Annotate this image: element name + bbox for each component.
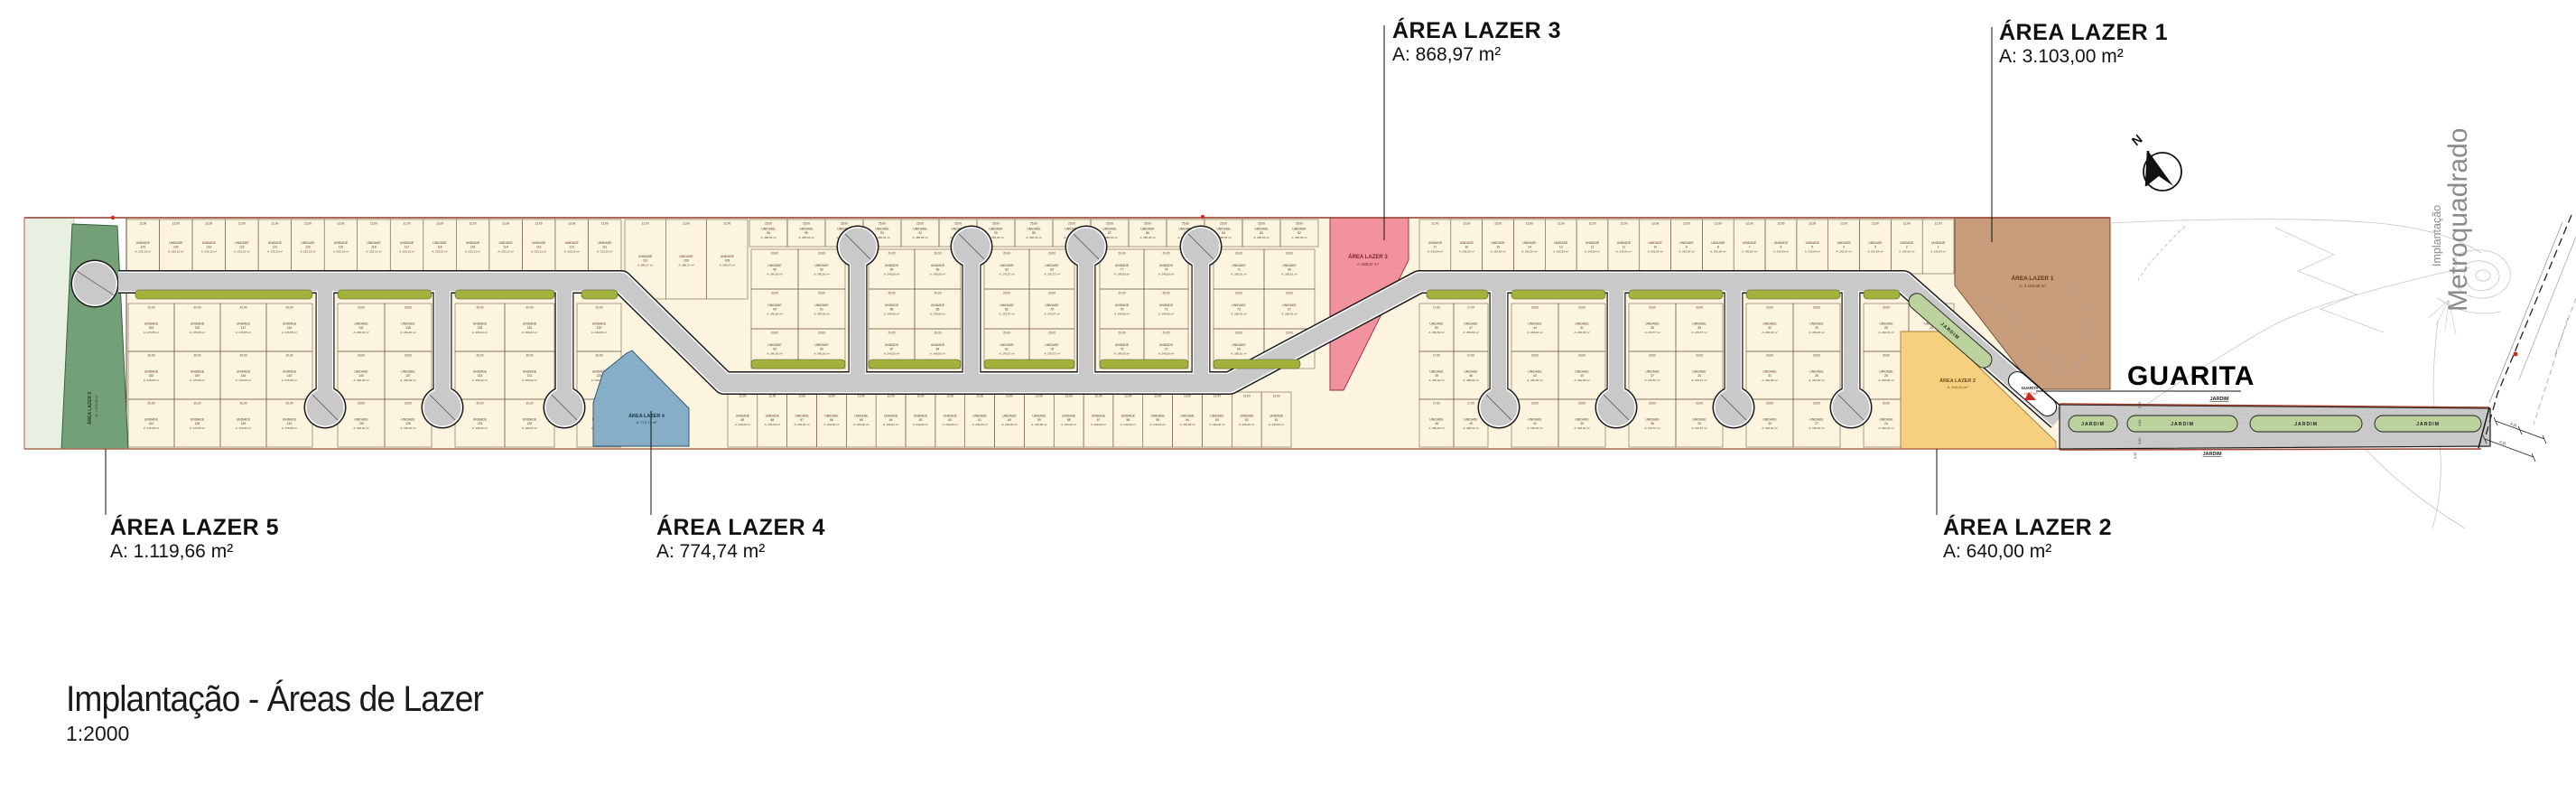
svg-text:12,00: 12,00: [1558, 222, 1565, 226]
svg-text:20,00: 20,00: [888, 332, 896, 335]
svg-text:UNIDADE: UNIDADE: [283, 418, 297, 422]
svg-text:A: 233,13 m²: A: 233,13 m²: [333, 250, 349, 254]
svg-text:A: 266,62 m²: A: 266,62 m²: [1463, 331, 1478, 334]
svg-text:12,00: 12,00: [1526, 222, 1533, 226]
svg-text:12,00: 12,00: [172, 222, 180, 226]
svg-text:117: 117: [405, 246, 410, 249]
svg-text:68: 68: [770, 418, 774, 422]
callout-title: ÁREA LAZER 5: [110, 515, 279, 541]
svg-text:UNIDADE: UNIDADE: [334, 241, 349, 245]
svg-text:20,00: 20,00: [935, 292, 942, 295]
svg-text:UNIDADE: UNIDADE: [1774, 241, 1789, 245]
svg-text:72: 72: [1165, 347, 1168, 350]
svg-text:134: 134: [478, 374, 483, 378]
svg-text:56: 56: [1126, 418, 1130, 422]
svg-text:UNIDADE: UNIDADE: [767, 264, 782, 267]
svg-text:111: 111: [602, 246, 607, 249]
svg-text:UNIDADE: UNIDADE: [1282, 304, 1297, 307]
svg-text:A: 266,62 m²: A: 266,62 m²: [1231, 312, 1246, 315]
svg-text:20,00: 20,00: [771, 252, 778, 256]
svg-text:UNIDADE: UNIDADE: [1900, 241, 1914, 245]
svg-text:65: 65: [860, 418, 863, 422]
svg-text:A: 276,55 m²: A: 276,55 m²: [144, 331, 159, 334]
svg-text:UNIDADE: UNIDADE: [565, 241, 580, 245]
svg-text:27: 27: [1815, 422, 1818, 425]
svg-text:UNIDADE: UNIDADE: [824, 415, 839, 418]
svg-text:81: 81: [1005, 347, 1009, 350]
svg-text:UNIDADE: UNIDADE: [401, 418, 415, 422]
svg-text:96: 96: [767, 231, 770, 235]
svg-text:12,00: 12,00: [1463, 222, 1470, 226]
svg-text:A: 240,00 m²: A: 240,00 m²: [1878, 426, 1893, 430]
svg-text:12,00: 12,00: [1184, 395, 1191, 398]
svg-text:UNIDADE: UNIDADE: [499, 241, 514, 245]
svg-text:20,00: 20,00: [1696, 354, 1703, 358]
landscape-strip: [455, 290, 554, 299]
svg-text:0,45: 0,45: [2134, 453, 2137, 459]
svg-text:A: 233,13 m²: A: 233,13 m²: [597, 250, 612, 254]
svg-text:20,00: 20,00: [1235, 332, 1242, 335]
svg-text:88: 88: [890, 307, 894, 311]
svg-text:UNIDADE: UNIDADE: [1617, 241, 1632, 245]
svg-text:20,00: 20,00: [240, 306, 247, 310]
svg-text:A: 276,55 m²: A: 276,55 m²: [190, 378, 205, 382]
svg-text:UNIDADE: UNIDADE: [1837, 241, 1851, 245]
svg-text:118: 118: [371, 246, 377, 249]
svg-text:93: 93: [880, 231, 884, 235]
svg-text:34: 34: [1697, 374, 1701, 378]
svg-text:A: 233,13 m²: A: 233,13 m²: [201, 250, 217, 254]
guarita-small-area: 16,27 m²: [2024, 392, 2039, 396]
svg-text:UNIDADE: UNIDADE: [235, 241, 249, 245]
svg-text:JARDIM: JARDIM: [2202, 452, 2222, 457]
svg-text:132: 132: [527, 326, 533, 330]
svg-text:20,00: 20,00: [1048, 252, 1056, 256]
svg-text:UNIDADE: UNIDADE: [1102, 228, 1117, 231]
svg-text:A: 233,13 m²: A: 233,13 m²: [267, 250, 283, 254]
svg-text:20,00: 20,00: [1766, 402, 1773, 406]
svg-text:17,00: 17,00: [1433, 306, 1440, 310]
svg-text:20,00: 20,00: [148, 402, 155, 406]
callout-area: A: 774,74 m²: [656, 541, 825, 563]
svg-text:UNIDADE: UNIDADE: [931, 264, 945, 267]
callout-area: A: 1.119,66 m²: [110, 541, 279, 563]
svg-text:UNIDADE: UNIDADE: [1232, 264, 1246, 267]
svg-text:UNIDADE: UNIDADE: [1092, 415, 1106, 418]
svg-text:141: 141: [358, 326, 364, 330]
svg-text:35: 35: [1697, 326, 1701, 330]
svg-text:UNIDADE: UNIDADE: [367, 241, 381, 245]
svg-text:UNIDADE: UNIDADE: [1645, 418, 1660, 422]
svg-text:25,00: 25,00: [1106, 222, 1113, 226]
landscape-strip: [1214, 360, 1300, 369]
svg-text:UNIDADE: UNIDADE: [1586, 241, 1600, 245]
svg-text:A: 242,54 m²: A: 242,54 m²: [1585, 250, 1600, 254]
svg-text:A: 240,00 m²: A: 240,00 m²: [883, 423, 898, 426]
svg-text:A: 240,00 m²: A: 240,00 m²: [353, 426, 368, 430]
svg-text:A: 276,57 m²: A: 276,57 m²: [1644, 378, 1660, 382]
svg-text:UNIDADE: UNIDADE: [799, 228, 814, 231]
svg-text:UNIDADE: UNIDADE: [1879, 418, 1893, 422]
svg-text:23: 23: [1930, 326, 1933, 330]
svg-text:12,00: 12,00: [1589, 222, 1596, 226]
svg-text:133: 133: [478, 422, 483, 425]
svg-text:A: 240,00 m²: A: 240,00 m²: [1527, 378, 1542, 382]
svg-text:A: 276,57 m²: A: 276,57 m²: [999, 351, 1014, 355]
siteplan-sheet: 12,00UNIDADE125A: 233,13 m²12,00UNIDADE1…: [0, 0, 2576, 794]
svg-text:12,00: 12,00: [1036, 395, 1043, 398]
jardim-median: JARDIM: [2375, 416, 2481, 432]
svg-text:12,00: 12,00: [568, 222, 575, 226]
svg-text:1: 1: [1938, 246, 1939, 249]
svg-text:20,00: 20,00: [405, 306, 412, 310]
watermark: Metroquadrado Implantação: [2431, 128, 2473, 312]
svg-text:54: 54: [1186, 418, 1189, 422]
svg-text:UNIDADE: UNIDADE: [885, 304, 899, 307]
svg-text:UNIDADE: UNIDADE: [1491, 241, 1505, 245]
svg-text:55: 55: [1156, 418, 1159, 422]
svg-text:90: 90: [994, 231, 998, 235]
svg-text:A: 240,00 m²: A: 240,00 m²: [1809, 331, 1824, 334]
svg-text:142: 142: [287, 422, 293, 425]
svg-text:UNIDADE: UNIDADE: [401, 322, 415, 326]
svg-text:9: 9: [1686, 246, 1688, 249]
svg-text:JARDIM: JARDIM: [2416, 422, 2440, 427]
svg-text:A: 265,45 m²: A: 265,45 m²: [798, 236, 814, 239]
svg-text:12,00: 12,00: [723, 222, 730, 226]
landscape-strip: [751, 360, 845, 369]
svg-text:12,00: 12,00: [1620, 222, 1627, 226]
svg-text:A: 276,55 m²: A: 276,55 m²: [282, 426, 297, 430]
svg-text:UNIDADE: UNIDADE: [532, 241, 546, 245]
svg-text:A: 1.119,66 m²: A: 1.119,66 m²: [95, 394, 98, 416]
svg-text:20,00: 20,00: [1883, 402, 1890, 406]
svg-text:UNIDADE: UNIDADE: [1002, 415, 1017, 418]
svg-text:20,00: 20,00: [286, 354, 293, 358]
svg-text:144: 144: [287, 326, 293, 330]
svg-text:UNIDADE: UNIDADE: [1032, 415, 1046, 418]
svg-text:A: 242,54 m²: A: 242,54 m²: [1930, 250, 1946, 254]
svg-text:51: 51: [1275, 418, 1279, 422]
svg-text:20,00: 20,00: [1163, 332, 1170, 335]
svg-text:29: 29: [1815, 326, 1818, 330]
svg-text:A: 266,62 m²: A: 266,62 m²: [522, 331, 537, 334]
svg-text:A: 240,00 m²: A: 240,00 m²: [1158, 272, 1174, 276]
plan-canvas: 12,00UNIDADE125A: 233,13 m²12,00UNIDADE1…: [0, 0, 2576, 794]
svg-text:20,00: 20,00: [358, 402, 365, 406]
svg-text:A: 276,57 m²: A: 276,57 m²: [1644, 426, 1660, 430]
svg-text:A: 276,55 m²: A: 276,55 m²: [282, 331, 297, 334]
svg-text:137: 137: [405, 374, 411, 378]
svg-text:87: 87: [890, 347, 894, 350]
svg-text:36: 36: [1651, 422, 1654, 425]
svg-text:A: 276,57 m²: A: 276,57 m²: [1691, 378, 1706, 382]
svg-text:A: 233,13 m²: A: 233,13 m²: [465, 250, 480, 254]
svg-text:131: 131: [527, 374, 533, 378]
svg-text:UNIDADE: UNIDADE: [1879, 370, 1893, 374]
svg-text:114: 114: [503, 246, 508, 249]
svg-text:UNIDADE: UNIDADE: [1528, 418, 1542, 422]
svg-text:15: 15: [1496, 246, 1500, 249]
svg-text:UNIDADE: UNIDADE: [885, 343, 899, 347]
svg-text:44: 44: [1533, 326, 1537, 330]
svg-text:A: 240,00 m²: A: 240,00 m²: [591, 331, 607, 334]
svg-text:A: 242,54 m²: A: 242,54 m²: [1616, 250, 1632, 254]
svg-text:20,00: 20,00: [358, 354, 365, 358]
svg-text:120: 120: [305, 246, 311, 249]
svg-text:A: 276,57 m²: A: 276,57 m²: [999, 272, 1014, 276]
svg-text:UNIDADE: UNIDADE: [1429, 418, 1444, 422]
svg-text:A: 266,62 m²: A: 266,62 m²: [1428, 426, 1444, 430]
svg-text:UNIDADE: UNIDADE: [1649, 241, 1663, 245]
svg-text:UNIDADE: UNIDADE: [283, 370, 297, 374]
svg-text:46: 46: [1469, 374, 1473, 378]
svg-text:12,00: 12,00: [888, 395, 895, 398]
svg-text:148: 148: [195, 422, 200, 425]
svg-text:UNIDADE: UNIDADE: [1464, 322, 1478, 326]
north-arrow: [2146, 151, 2173, 186]
svg-text:UNIDADE: UNIDADE: [1806, 241, 1820, 245]
svg-text:52: 52: [1245, 418, 1249, 422]
svg-text:20,00: 20,00: [1163, 252, 1170, 256]
svg-text:A: 240,00 m²: A: 240,00 m²: [767, 312, 782, 315]
svg-text:40: 40: [1580, 374, 1584, 378]
svg-text:A: 240,00 m²: A: 240,00 m²: [767, 351, 782, 355]
svg-text:79: 79: [1050, 307, 1054, 311]
svg-text:A: 276,55 m²: A: 276,55 m²: [190, 426, 205, 430]
svg-text:A: 242,54 m²: A: 242,54 m²: [1521, 250, 1537, 254]
svg-text:115: 115: [470, 246, 476, 249]
svg-text:UNIDADE: UNIDADE: [191, 322, 205, 326]
svg-text:12,00: 12,00: [304, 222, 312, 226]
svg-text:UNIDADE: UNIDADE: [1692, 370, 1706, 374]
svg-text:A: 240,00 m²: A: 240,00 m²: [1762, 426, 1777, 430]
svg-text:UNIDADE: UNIDADE: [473, 418, 488, 422]
svg-text:UNIDADE: UNIDADE: [1045, 304, 1059, 307]
svg-text:UNIDADE: UNIDADE: [1159, 343, 1174, 347]
svg-text:69: 69: [741, 418, 745, 422]
svg-text:42: 42: [1533, 422, 1537, 425]
svg-text:UNIDADE: UNIDADE: [1269, 415, 1284, 418]
svg-text:UNIDADE: UNIDADE: [1679, 241, 1694, 245]
svg-text:JARDIM: JARDIM: [2171, 422, 2194, 427]
svg-text:UNIDADE: UNIDADE: [1115, 343, 1130, 347]
svg-text:A: 242,54 m²: A: 242,54 m²: [1427, 250, 1443, 254]
landscape-strip: [338, 290, 432, 299]
svg-text:UNIDADE: UNIDADE: [354, 322, 368, 326]
svg-text:20,00: 20,00: [596, 354, 603, 358]
svg-text:UNIDADE: UNIDADE: [1240, 415, 1254, 418]
svg-text:8: 8: [1717, 246, 1719, 249]
svg-text:UNIDADE: UNIDADE: [1692, 418, 1706, 422]
svg-text:A: 242,54 m²: A: 242,54 m²: [1648, 250, 1663, 254]
svg-text:77: 77: [1121, 267, 1124, 271]
svg-text:25,00: 25,00: [992, 222, 1000, 226]
svg-text:A: 276,55 m²: A: 276,55 m²: [190, 331, 205, 334]
svg-text:A: 242,54 m²: A: 242,54 m²: [1679, 250, 1694, 254]
svg-text:20,00: 20,00: [1048, 292, 1056, 295]
svg-text:A: 266,62 m²: A: 266,62 m²: [522, 378, 537, 382]
svg-text:95: 95: [773, 267, 777, 271]
svg-text:121: 121: [273, 246, 278, 249]
svg-text:A: 240,00 m²: A: 240,00 m²: [1209, 423, 1224, 426]
svg-text:152: 152: [149, 374, 154, 378]
watermark-brand: Metroquadrado: [2443, 128, 2473, 312]
svg-text:20,00: 20,00: [240, 402, 247, 406]
svg-text:20,00: 20,00: [477, 306, 484, 310]
svg-text:20,00: 20,00: [1163, 292, 1170, 295]
svg-text:20,00: 20,00: [358, 306, 365, 310]
svg-text:UNIDADE: UNIDADE: [766, 415, 780, 418]
svg-text:95: 95: [804, 231, 808, 235]
svg-text:59: 59: [1037, 418, 1041, 422]
svg-text:83: 83: [1005, 267, 1009, 271]
svg-text:53: 53: [1215, 418, 1219, 422]
svg-text:12,00: 12,00: [205, 222, 212, 226]
svg-text:12,00: 12,00: [139, 222, 146, 226]
svg-text:20,00: 20,00: [935, 332, 942, 335]
svg-text:UNIDADE: UNIDADE: [354, 418, 368, 422]
svg-text:UNIDADE: UNIDADE: [931, 343, 945, 347]
svg-text:UNIDADE: UNIDADE: [721, 255, 735, 258]
svg-text:12,00: 12,00: [1746, 222, 1753, 226]
svg-text:A: 240,00 m²: A: 240,00 m²: [823, 423, 839, 426]
svg-text:20,00: 20,00: [771, 332, 778, 335]
svg-text:A: 240,00 m²: A: 240,00 m²: [1574, 426, 1589, 430]
svg-text:80: 80: [1050, 267, 1054, 271]
svg-text:25,00: 25,00: [1296, 222, 1303, 226]
svg-text:A: 242,54 m²: A: 242,54 m²: [1837, 250, 1852, 254]
svg-text:UNIDADE: UNIDADE: [1000, 343, 1014, 347]
svg-text:5: 5: [1811, 246, 1813, 249]
svg-text:ÁREA LAZER 4: ÁREA LAZER 4: [628, 413, 665, 419]
callout-area-lazer-1: ÁREA LAZER 1 A: 3.103,00 m²: [1999, 20, 2168, 68]
svg-text:20,00: 20,00: [286, 306, 293, 310]
svg-text:UNIDADE: UNIDADE: [761, 228, 776, 231]
svg-text:20,00: 20,00: [888, 292, 896, 295]
svg-text:UNIDADE: UNIDADE: [283, 322, 297, 326]
svg-text:49: 49: [1435, 374, 1438, 378]
svg-text:UNIDADE: UNIDADE: [885, 264, 899, 267]
svg-text:A: 240,00 m²: A: 240,00 m²: [930, 312, 945, 315]
svg-text:26: 26: [1884, 326, 1888, 330]
svg-text:138: 138: [405, 326, 411, 330]
svg-text:UNIDADE: UNIDADE: [854, 415, 869, 418]
svg-text:UNIDADE: UNIDADE: [1460, 241, 1474, 245]
svg-text:A: 240,00 m²: A: 240,00 m²: [767, 272, 782, 276]
svg-text:12,00: 12,00: [642, 222, 649, 226]
svg-text:UNIDADE: UNIDADE: [1121, 415, 1136, 418]
svg-text:UNIDADE: UNIDADE: [1115, 264, 1130, 267]
callout-area-lazer-5: ÁREA LAZER 5 A: 1.119,66 m²: [110, 515, 279, 563]
svg-text:149: 149: [195, 374, 200, 378]
svg-text:128: 128: [597, 374, 602, 378]
svg-text:25,00: 25,00: [1220, 222, 1227, 226]
callout-area-lazer-2: ÁREA LAZER 2 A: 640,00 m²: [1943, 515, 2112, 563]
svg-text:28: 28: [1815, 374, 1818, 378]
svg-text:38: 38: [1651, 326, 1654, 330]
svg-text:20,00: 20,00: [1578, 354, 1586, 358]
svg-text:20,00: 20,00: [1766, 306, 1773, 310]
svg-text:17,00: 17,00: [1433, 354, 1440, 358]
svg-text:153: 153: [149, 326, 154, 330]
svg-text:20,00: 20,00: [477, 354, 484, 358]
svg-text:A: 240,00 m²: A: 240,00 m²: [1158, 312, 1174, 315]
svg-text:ÁREA LAZER 1: ÁREA LAZER 1: [2011, 274, 2053, 282]
svg-text:12,00: 12,00: [337, 222, 344, 226]
svg-text:24: 24: [1884, 422, 1888, 425]
svg-text:69: 69: [1237, 347, 1241, 350]
svg-text:UNIDADE: UNIDADE: [875, 228, 889, 231]
svg-text:12,00: 12,00: [1903, 222, 1911, 226]
svg-text:A: 240,00 m²: A: 240,00 m²: [1150, 423, 1166, 426]
sheet-scale: 1:2000: [66, 722, 515, 746]
svg-text:A: 233,13 m²: A: 233,13 m²: [531, 250, 546, 254]
svg-text:20,00: 20,00: [771, 292, 778, 295]
svg-text:82: 82: [1297, 231, 1301, 235]
svg-text:58: 58: [1067, 418, 1071, 422]
svg-text:UNIDADE: UNIDADE: [767, 304, 782, 307]
svg-text:94: 94: [773, 307, 777, 311]
svg-text:20,00: 20,00: [1119, 292, 1126, 295]
svg-text:12,00: 12,00: [535, 222, 543, 226]
svg-text:UNIDADE: UNIDADE: [814, 304, 829, 307]
svg-text:UNIDADE: UNIDADE: [1000, 264, 1014, 267]
svg-text:20,00: 20,00: [818, 252, 825, 256]
svg-text:UNIDADE: UNIDADE: [401, 370, 415, 374]
svg-text:A: 242,54 m²: A: 242,54 m²: [1805, 250, 1820, 254]
svg-text:A: 233,13 m²: A: 233,13 m²: [432, 250, 447, 254]
svg-text:6: 6: [1781, 246, 1782, 249]
svg-text:20,00: 20,00: [1048, 332, 1056, 335]
svg-text:UNIDADE: UNIDADE: [237, 418, 251, 422]
svg-text:151: 151: [149, 422, 154, 425]
svg-text:A: 276,55 m²: A: 276,55 m²: [236, 331, 251, 334]
svg-text:A: 286,27 m²: A: 286,27 m²: [720, 263, 735, 266]
svg-text:45: 45: [1469, 422, 1473, 425]
svg-text:123: 123: [206, 246, 211, 249]
svg-text:20,00: 20,00: [1531, 306, 1539, 310]
svg-text:UNIDADE: UNIDADE: [1140, 228, 1155, 231]
svg-text:UNIDADE: UNIDADE: [814, 343, 829, 347]
svg-text:3: 3: [1874, 246, 1876, 249]
svg-text:A: 242,54 m²: A: 242,54 m²: [1490, 250, 1505, 254]
svg-text:UNIDADE: UNIDADE: [814, 264, 829, 267]
svg-text:20,00: 20,00: [1235, 292, 1242, 295]
svg-text:UNIDADE: UNIDADE: [202, 241, 217, 245]
svg-text:A: 233,13 m²: A: 233,13 m²: [498, 250, 514, 254]
svg-text:A: 266,62 m²: A: 266,62 m²: [1428, 331, 1444, 334]
svg-text:A: 233,13 m²: A: 233,13 m²: [234, 250, 249, 254]
svg-text:146: 146: [241, 374, 246, 378]
svg-text:25,00: 25,00: [1068, 222, 1075, 226]
svg-text:A: 240,00 m²: A: 240,00 m²: [1001, 423, 1017, 426]
north-letter: N: [2129, 132, 2145, 149]
landscape-strip: [581, 290, 618, 299]
svg-text:71: 71: [1237, 267, 1241, 271]
svg-text:UNIDADE: UNIDADE: [1045, 264, 1059, 267]
svg-text:UNIDADE: UNIDADE: [523, 370, 537, 374]
svg-text:UNIDADE: UNIDADE: [1159, 264, 1174, 267]
svg-text:12,00: 12,00: [683, 222, 690, 226]
svg-text:20,00: 20,00: [1578, 306, 1586, 310]
svg-text:UNIDADE: UNIDADE: [1554, 241, 1568, 245]
svg-text:A: 240,00 m²: A: 240,00 m²: [1239, 423, 1254, 426]
svg-text:UNIDADE: UNIDADE: [1809, 322, 1824, 326]
svg-text:A: 265,45 m²: A: 265,45 m²: [1291, 236, 1307, 239]
svg-text:12,00: 12,00: [739, 395, 746, 398]
svg-text:A: 240,00 m²: A: 240,00 m²: [884, 351, 899, 355]
